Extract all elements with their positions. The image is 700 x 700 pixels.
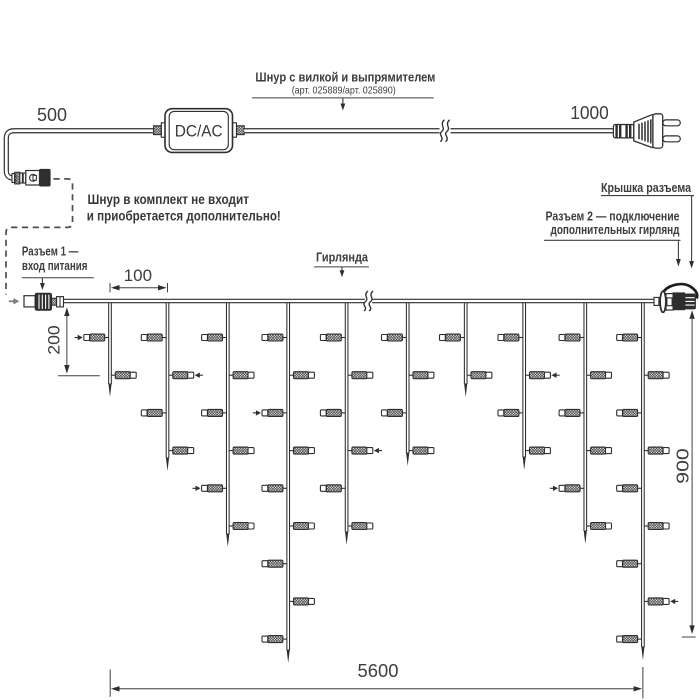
svg-text:Крышка разъема: Крышка разъема — [601, 180, 692, 195]
svg-text:DC/AC: DC/AC — [175, 122, 223, 140]
svg-text:дополнительных гирлянд: дополнительных гирлянд — [551, 222, 680, 237]
svg-text:Разъем 1 —: Разъем 1 — — [22, 244, 79, 259]
svg-text:200: 200 — [44, 325, 63, 355]
svg-text:1000: 1000 — [570, 103, 609, 123]
svg-text:(арт. 025889/арт. 025890): (арт. 025889/арт. 025890) — [292, 86, 396, 97]
svg-text:900: 900 — [673, 448, 693, 484]
svg-text:и приобретается дополнительно!: и приобретается дополнительно! — [87, 209, 281, 224]
svg-text:5600: 5600 — [358, 661, 399, 681]
svg-text:вход питания: вход питания — [22, 258, 88, 273]
svg-text:Шнур с вилкой и выпрямителем: Шнур с вилкой и выпрямителем — [255, 70, 435, 85]
svg-text:Шнур в комплект не входит: Шнур в комплект не входит — [88, 192, 250, 207]
svg-text:500: 500 — [37, 105, 67, 125]
svg-text:100: 100 — [124, 266, 152, 285]
svg-text:Гирлянда: Гирлянда — [316, 249, 369, 264]
